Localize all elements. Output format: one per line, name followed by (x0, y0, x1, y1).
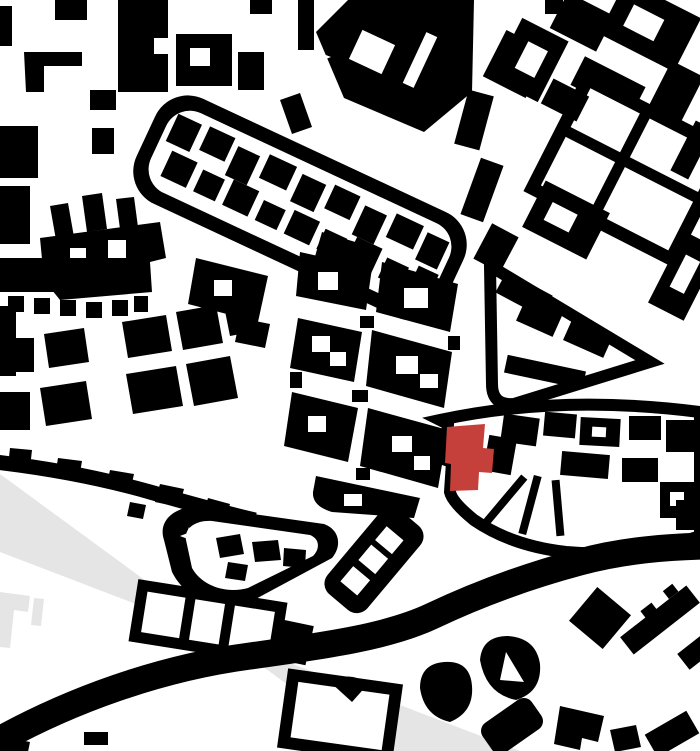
city-blocks-layer (0, 0, 700, 751)
figure-ground-map (0, 0, 700, 751)
rounded-building (420, 662, 472, 722)
window-block (319, 501, 430, 619)
block-top-center (280, 0, 474, 134)
watermark-letter-fragment (0, 592, 30, 648)
blocks-left (0, 301, 256, 521)
triangle-block (490, 266, 650, 404)
blocks-south-east (569, 578, 700, 670)
watermark-letter-fragment (31, 598, 44, 626)
